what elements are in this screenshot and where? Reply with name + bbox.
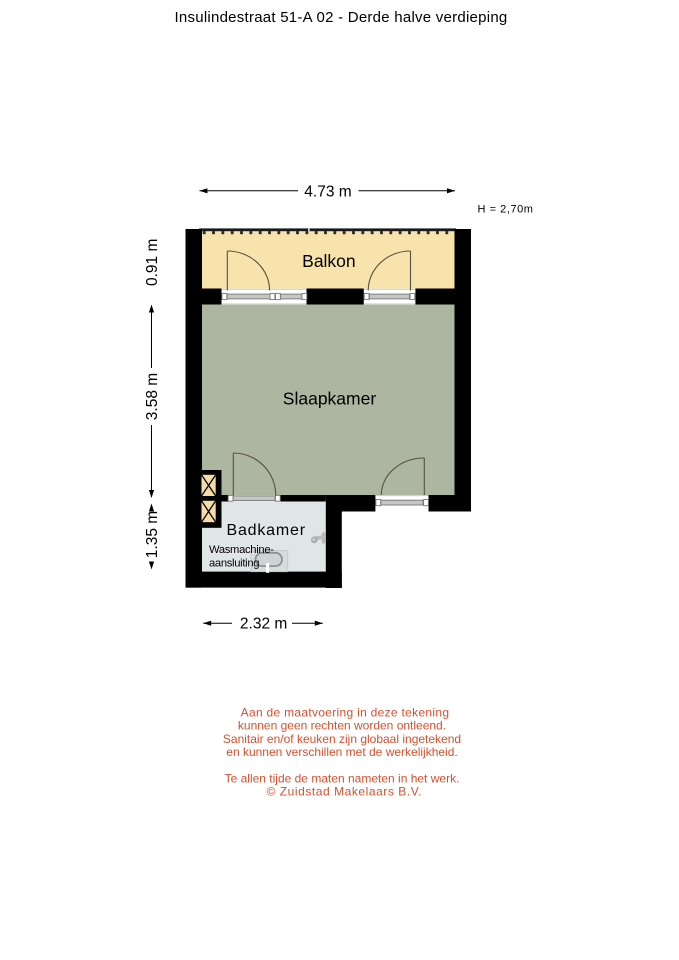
svg-text:2.32 m: 2.32 m [240, 616, 287, 633]
svg-text:0.91 m: 0.91 m [144, 239, 161, 286]
svg-text:kunnen geen rechten worden ont: kunnen geen rechten worden ontleend. [238, 719, 446, 733]
svg-text:Sanitair en/of keuken zijn glo: Sanitair en/of keuken zijn globaal inget… [223, 732, 461, 746]
svg-text:Te allen tijde de maten namete: Te allen tijde de maten nameten in het w… [225, 772, 460, 786]
svg-text:en kunnen verschillen met de w: en kunnen verschillen met de werkelijkhe… [226, 745, 457, 759]
svg-text:Wasmachine-: Wasmachine- [209, 544, 274, 556]
svg-text:1.35 m: 1.35 m [144, 511, 161, 558]
svg-text:Aan de maatvoering in deze tek: Aan de maatvoering in deze tekening [241, 706, 450, 720]
svg-text:aansluiting: aansluiting [209, 558, 259, 570]
svg-text:Insulindestraat 51-A 02 - Derd: Insulindestraat 51-A 02 - Derde halve ve… [174, 9, 507, 26]
svg-text:Balkon: Balkon [302, 251, 356, 271]
svg-text:3.58 m: 3.58 m [144, 373, 161, 420]
svg-text:© Zuidstad Makelaars B.V.: © Zuidstad Makelaars B.V. [267, 785, 423, 799]
svg-text:Slaapkamer: Slaapkamer [283, 389, 377, 409]
svg-text:4.73 m: 4.73 m [304, 184, 351, 201]
svg-text:Badkamer: Badkamer [227, 522, 306, 539]
svg-text:H = 2,70m: H = 2,70m [478, 204, 534, 216]
